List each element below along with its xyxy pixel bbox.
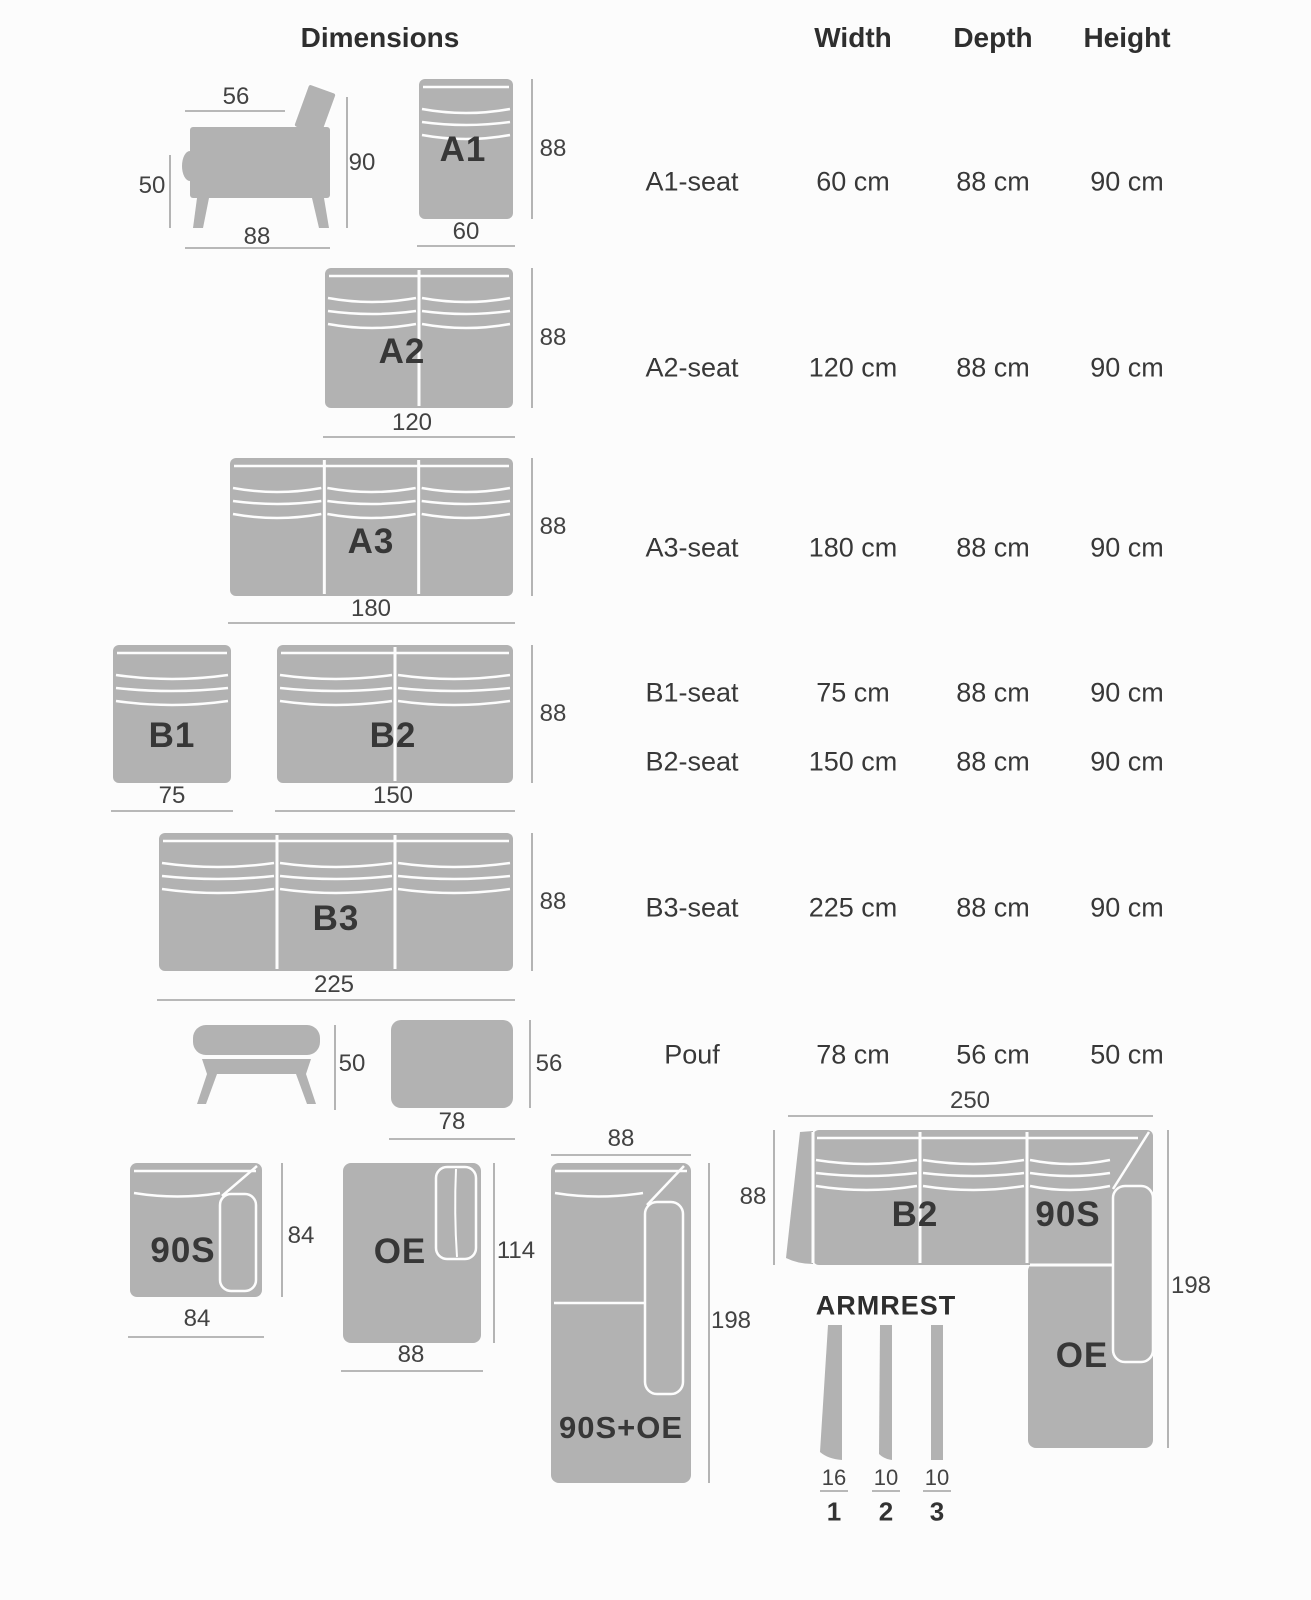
module-a2-dim-width: 120 — [392, 409, 432, 437]
armrest-3-dim-width: 10 — [925, 1465, 949, 1491]
module-b2-drawing — [277, 645, 513, 783]
module-b3-dim-width: 225 — [314, 971, 354, 999]
module-90s-oe-dim-length: 198 — [711, 1307, 751, 1335]
armrest-2-dim-width: 10 — [874, 1465, 898, 1491]
row-b3-width: 225 cm — [809, 893, 898, 924]
row-a3-width: 180 cm — [809, 533, 898, 564]
module-a2-dim-depth: 88 — [540, 324, 567, 352]
row-b1-width: 75 cm — [816, 678, 890, 709]
row-a1-depth: 88 cm — [956, 167, 1030, 198]
row-pouf-label: Pouf — [664, 1040, 720, 1071]
sideview-dim-depth: 88 — [244, 223, 271, 251]
module-90s-dim-depth: 84 — [288, 1222, 315, 1250]
row-b1-depth: 88 cm — [956, 678, 1030, 709]
row-b3-label: B3-seat — [645, 893, 738, 924]
module-oe-dim-depth: 114 — [497, 1237, 535, 1265]
module-b3-dim-depth: 88 — [540, 888, 567, 916]
corner-dim-length: 198 — [1171, 1272, 1211, 1300]
module-90s-label: 90S — [150, 1231, 215, 1271]
row-pouf-depth: 56 cm — [956, 1040, 1030, 1071]
armrest-2-index: 2 — [879, 1497, 893, 1528]
row-a1-width: 60 cm — [816, 167, 890, 198]
module-oe-label: OE — [374, 1232, 427, 1272]
diagram-canvas — [0, 0, 1311, 1600]
armrest-3-shape — [931, 1325, 943, 1460]
sideview-dim-seat-width: 56 — [223, 83, 250, 111]
row-a2-label: A2-seat — [645, 353, 738, 384]
module-90s-dim-width: 84 — [184, 1305, 211, 1333]
module-a1-label: A1 — [440, 130, 487, 170]
module-a2-label: A2 — [379, 332, 426, 372]
module-90s-oe-dim-width: 88 — [608, 1125, 635, 1153]
column-depth: Depth — [953, 22, 1032, 54]
row-a2-depth: 88 cm — [956, 353, 1030, 384]
module-oe-dim-width: 88 — [398, 1341, 425, 1369]
row-b2-depth: 88 cm — [956, 747, 1030, 778]
module-a3-label: A3 — [348, 522, 395, 562]
corner-dim-depth: 88 — [740, 1183, 767, 1211]
row-a2-height: 90 cm — [1090, 353, 1164, 384]
module-b1-dim-width: 75 — [159, 782, 186, 810]
module-90s-oe-label: 90S+OE — [559, 1410, 683, 1446]
module-b1-drawing — [113, 645, 231, 783]
sideview-dim-seat-height: 50 — [139, 172, 166, 200]
column-width: Width — [814, 22, 892, 54]
sideview-dim-height: 90 — [349, 149, 376, 177]
row-a1-label: A1-seat — [645, 167, 738, 198]
row-b3-depth: 88 cm — [956, 893, 1030, 924]
corner-b2-label: B2 — [892, 1195, 939, 1235]
pouf-dim-width: 78 — [439, 1108, 466, 1136]
module-a3-dim-width: 180 — [351, 595, 391, 623]
row-pouf-height: 50 cm — [1090, 1040, 1164, 1071]
row-a3-depth: 88 cm — [956, 533, 1030, 564]
armrest-1-index: 1 — [827, 1497, 841, 1528]
corner-oe-label: OE — [1056, 1336, 1109, 1376]
corner-dim-width: 250 — [950, 1087, 990, 1115]
module-a1-dim-depth: 88 — [540, 135, 567, 163]
row-a2-width: 120 cm — [809, 353, 898, 384]
dimension-sheet: Dimensions Width Depth Height A1-seat 60… — [0, 0, 1311, 1600]
module-b1-label: B1 — [149, 716, 196, 756]
row-b2-label: B2-seat — [645, 747, 738, 778]
pouf-side-view-drawing — [193, 1025, 335, 1110]
row-b3-height: 90 cm — [1090, 893, 1164, 924]
armrest-1-shape — [820, 1325, 842, 1460]
armrest-1-dim-width: 16 — [822, 1465, 846, 1491]
column-height: Height — [1083, 22, 1170, 54]
row-a3-label: A3-seat — [645, 533, 738, 564]
module-b2-label: B2 — [370, 716, 417, 756]
row-pouf-width: 78 cm — [816, 1040, 890, 1071]
armrest-3-index: 3 — [930, 1497, 944, 1528]
module-b2-dim-width: 150 — [373, 782, 413, 810]
armrest-title: ARMREST — [816, 1291, 957, 1322]
row-b2-width: 150 cm — [809, 747, 898, 778]
row-b1-label: B1-seat — [645, 678, 738, 709]
module-a3-dim-depth: 88 — [540, 513, 567, 541]
pouf-dim-height: 50 — [339, 1050, 366, 1078]
corner-90s-label: 90S — [1035, 1195, 1100, 1235]
row-b2-height: 90 cm — [1090, 747, 1164, 778]
page-title: Dimensions — [301, 22, 460, 54]
module-b2-dim-depth: 88 — [540, 700, 567, 728]
armrest-2-shape — [879, 1325, 892, 1460]
row-b1-height: 90 cm — [1090, 678, 1164, 709]
pouf-dim-depth: 56 — [536, 1050, 563, 1078]
module-a1-dim-width: 60 — [453, 218, 480, 246]
module-b3-label: B3 — [313, 899, 360, 939]
row-a3-height: 90 cm — [1090, 533, 1164, 564]
row-a1-height: 90 cm — [1090, 167, 1164, 198]
